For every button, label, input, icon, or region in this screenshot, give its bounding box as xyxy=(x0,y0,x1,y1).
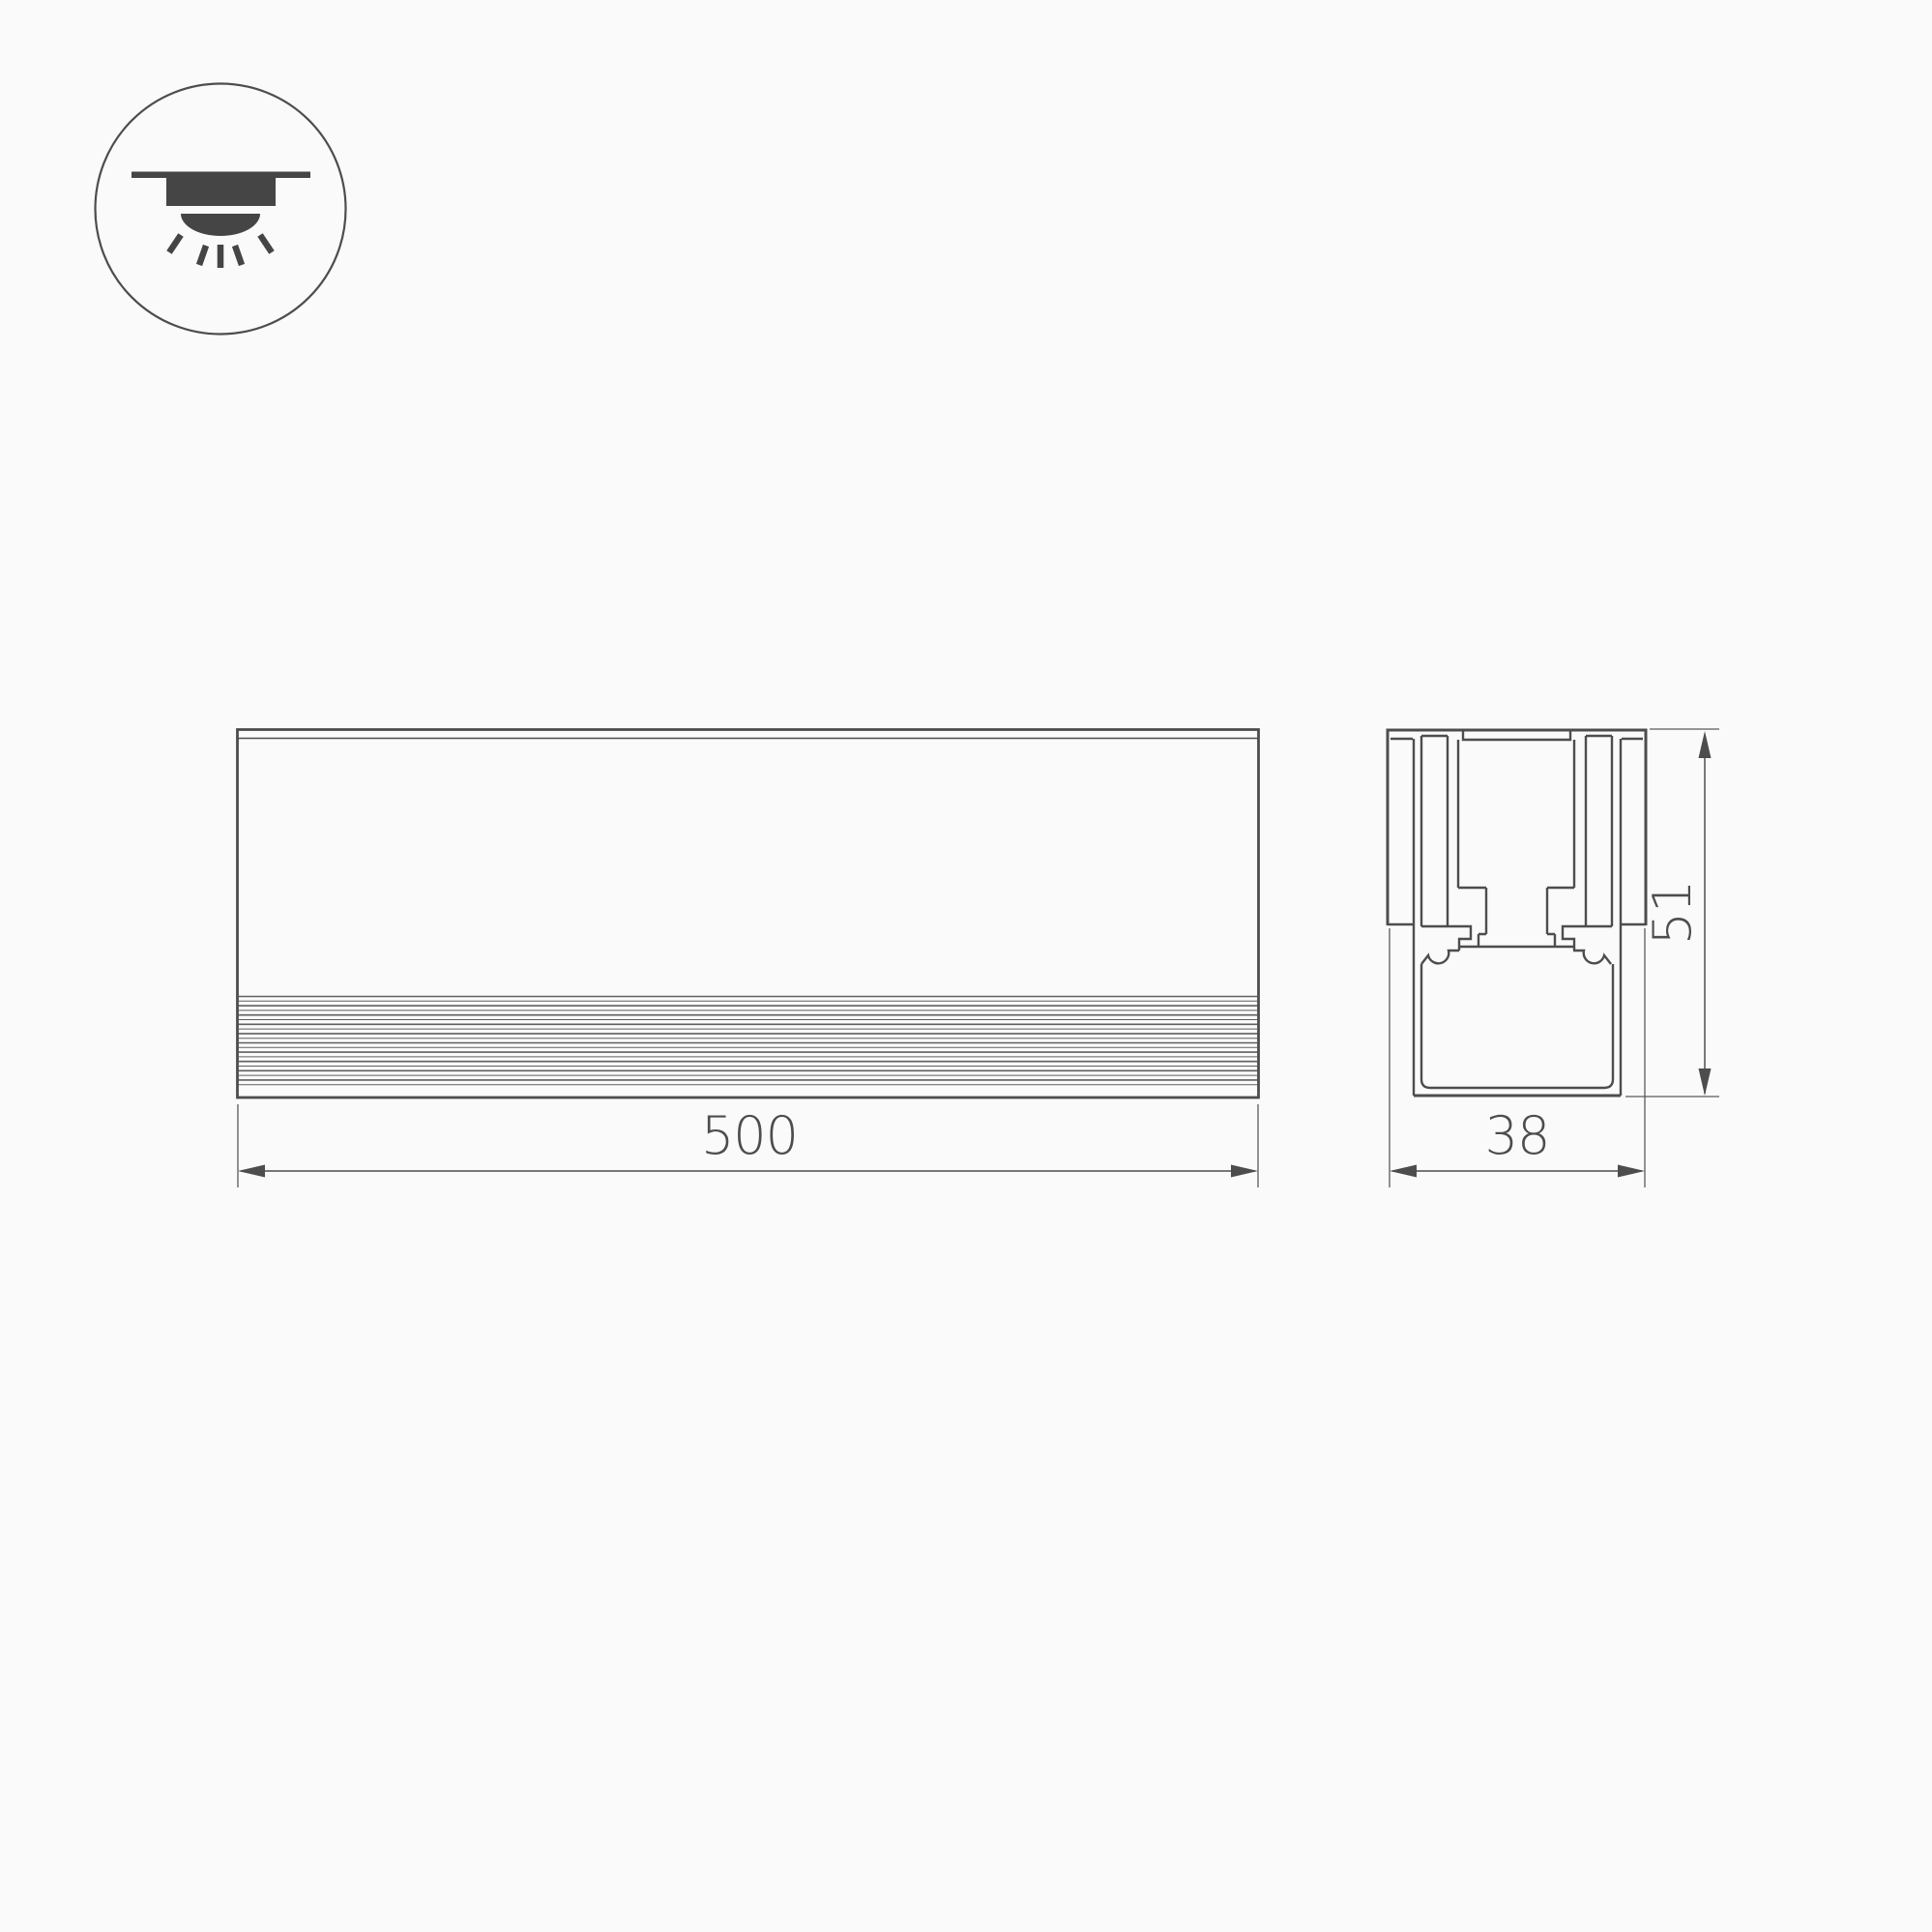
light-ray xyxy=(235,246,242,265)
arrowhead-right xyxy=(1231,1165,1258,1178)
section-outer-wall xyxy=(1388,730,1646,925)
arrowhead-bottom xyxy=(1699,1068,1712,1096)
mount-type-icon xyxy=(96,84,346,335)
icon-circle xyxy=(96,84,346,335)
light-ray xyxy=(199,246,206,265)
dimension-height-value: 51 xyxy=(1642,881,1703,946)
section-right-notch xyxy=(1573,951,1611,964)
light-rays-icon xyxy=(169,235,272,268)
section-view xyxy=(1388,730,1646,1096)
light-ray xyxy=(260,235,272,252)
section-lower-cavity xyxy=(1421,964,1613,1088)
dimension-width: 38 xyxy=(1390,928,1645,1187)
dimension-length: 500 xyxy=(238,1104,1258,1187)
arrowhead-right xyxy=(1618,1165,1645,1178)
dimension-width-value: 38 xyxy=(1485,1105,1550,1166)
arrowhead-left xyxy=(1390,1165,1417,1178)
arrowhead-top xyxy=(1699,731,1712,758)
technical-drawing: 500 38 51 xyxy=(0,0,1932,1932)
section-led-tray xyxy=(1459,934,1573,947)
lamp-dome xyxy=(181,214,260,236)
drawing-canvas: 500 38 51 xyxy=(0,0,1932,1932)
dimension-height: 51 xyxy=(1625,729,1719,1097)
arrowhead-left xyxy=(238,1165,265,1178)
recessed-housing xyxy=(166,172,276,207)
diffuser-ribs xyxy=(239,997,1258,1085)
section-inner-walls xyxy=(1421,736,1612,926)
section-center-cavity xyxy=(1458,740,1574,934)
light-ray xyxy=(169,235,181,252)
dimension-length-value: 500 xyxy=(701,1105,798,1166)
section-left-notch xyxy=(1421,951,1459,964)
front-view xyxy=(238,730,1259,1098)
section-side-walls xyxy=(1414,739,1621,1096)
